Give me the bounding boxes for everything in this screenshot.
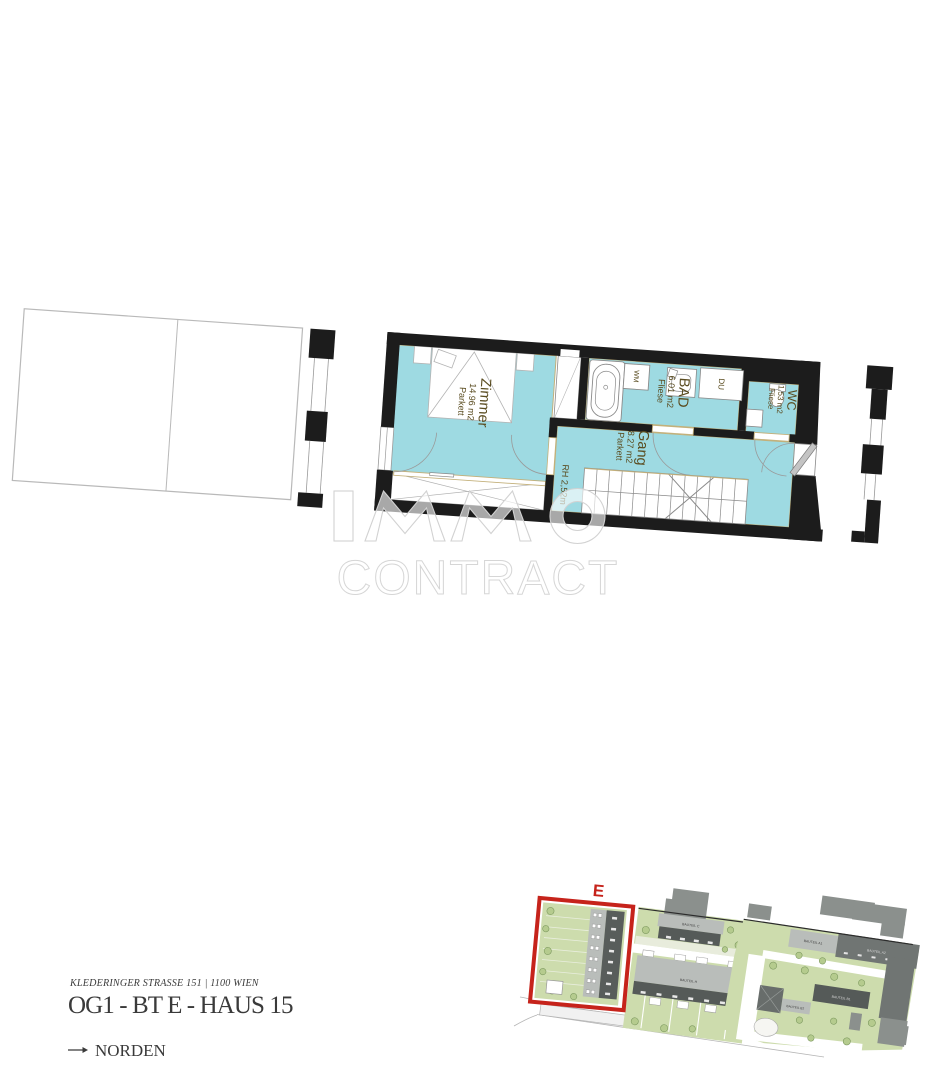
svg-text:CONTRACT: CONTRACT (337, 552, 620, 605)
svg-text:Parkett: Parkett (614, 432, 626, 462)
svg-text:NORDEN: NORDEN (95, 1041, 166, 1060)
svg-text:Fliese: Fliese (655, 379, 667, 404)
svg-text:WC: WC (784, 389, 799, 411)
svg-text:KLEDERINGER STRASSE 151 | 1100: KLEDERINGER STRASSE 151 | 1100 WIEN (69, 978, 260, 989)
svg-text:Fliese: Fliese (766, 388, 776, 410)
svg-text:E: E (592, 881, 605, 901)
svg-text:OG1 - BT E - HAUS 15: OG1 - BT E - HAUS 15 (68, 992, 293, 1019)
svg-text:DU: DU (716, 378, 726, 390)
svg-text:WM: WM (632, 370, 640, 383)
svg-text:Parkett: Parkett (456, 387, 468, 417)
